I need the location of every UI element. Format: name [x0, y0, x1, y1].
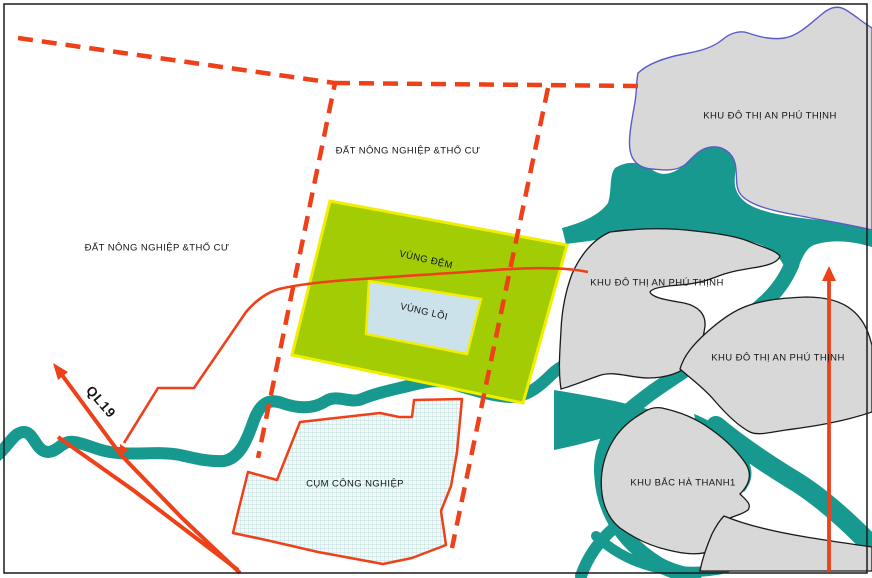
- boundary-dashed-top: [335, 83, 638, 86]
- label-urban-area-1: KHU ĐÔ THỊ AN PHÚ THỊNH: [703, 111, 836, 122]
- label-north-ha-thanh: KHU BẮC HÀ THANH1: [630, 478, 735, 489]
- north-arrow-head: [822, 266, 836, 281]
- label-agricultural-top: ĐẤT NÔNG NGHIỆP &THỔ CƯ: [336, 146, 481, 157]
- urban-area-mid-right: [680, 297, 872, 434]
- label-urban-area-3: KHU ĐÔ THỊ AN PHÚ THỊNH: [711, 353, 844, 364]
- highway-ql19-line-a: [62, 375, 240, 573]
- label-industrial-cluster: CỤM CÔNG NGHIỆP: [306, 479, 404, 490]
- map-canvas: [0, 0, 872, 578]
- planning-map: ĐẤT NÔNG NGHIỆP &THỔ CƯ ĐẤT NÔNG NGHIỆP …: [0, 0, 872, 578]
- label-agricultural-left: ĐẤT NÔNG NGHIỆP &THỔ CƯ: [85, 243, 230, 254]
- label-urban-area-2: KHU ĐÔ THỊ AN PHÚ THỊNH: [590, 278, 723, 289]
